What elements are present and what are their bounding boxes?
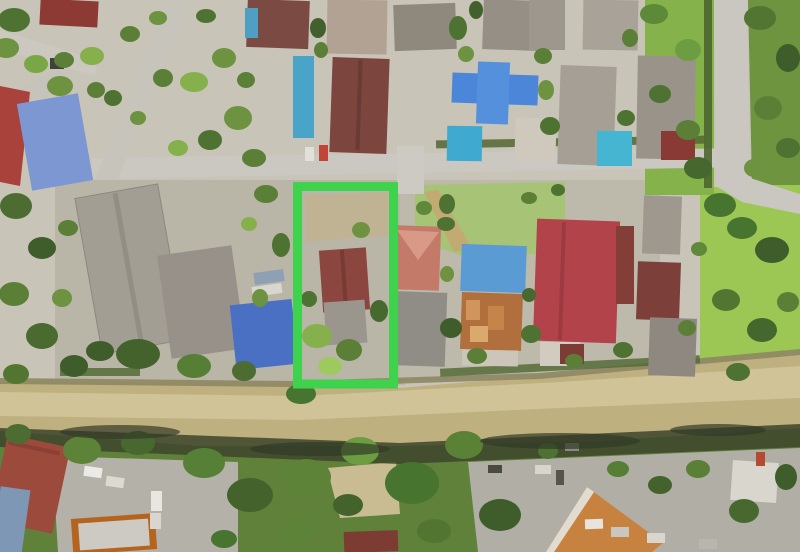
tree xyxy=(538,80,554,100)
tree xyxy=(691,242,707,256)
tree xyxy=(58,220,78,236)
car-white-lane xyxy=(305,147,314,161)
tree xyxy=(777,292,799,312)
tree xyxy=(754,96,782,120)
tree xyxy=(63,436,101,464)
tree xyxy=(254,185,278,203)
tree xyxy=(168,140,188,156)
tree xyxy=(26,323,58,349)
building-roof-blue-royal xyxy=(230,299,298,370)
tree xyxy=(310,18,326,38)
roof-blue-patch xyxy=(245,8,258,38)
tree xyxy=(776,44,800,72)
tree xyxy=(617,110,635,126)
tree xyxy=(177,354,211,378)
tree xyxy=(727,217,757,239)
tree xyxy=(352,222,370,238)
tree xyxy=(212,48,236,68)
car xyxy=(585,519,603,530)
tree xyxy=(416,201,432,215)
building-roof-blue-cross-b xyxy=(476,61,510,124)
tree xyxy=(314,42,328,58)
building-gray-right-1 xyxy=(642,195,682,254)
tree xyxy=(565,354,583,368)
tree xyxy=(227,478,273,512)
tree xyxy=(744,159,764,177)
building-roof-darkred-topleft xyxy=(39,0,98,27)
car xyxy=(151,491,162,511)
tree xyxy=(224,106,252,130)
truck-red-lane xyxy=(319,145,328,161)
building-gray-below-salmon xyxy=(394,291,448,367)
tree xyxy=(318,357,342,375)
tree xyxy=(0,282,29,306)
tree xyxy=(439,194,455,214)
tree xyxy=(534,48,552,64)
tree xyxy=(104,90,122,106)
tree xyxy=(467,348,487,364)
tree xyxy=(242,149,266,167)
tree xyxy=(640,4,668,24)
tree xyxy=(180,72,208,92)
tree xyxy=(252,289,268,307)
tree xyxy=(726,363,750,381)
car-dark xyxy=(488,465,502,473)
tree xyxy=(232,361,256,381)
aerial-imagery-canvas xyxy=(0,0,800,552)
tree xyxy=(613,342,633,358)
tree xyxy=(86,341,114,361)
tree xyxy=(744,6,776,30)
car-dark xyxy=(556,470,564,485)
aerial-map-view xyxy=(0,0,800,552)
tree xyxy=(54,52,74,68)
tree xyxy=(522,288,536,302)
tree xyxy=(675,39,701,61)
tree xyxy=(417,519,451,543)
tree xyxy=(281,519,315,543)
tree xyxy=(755,237,789,263)
tree xyxy=(622,29,638,47)
tree xyxy=(551,184,565,196)
tree xyxy=(440,318,462,338)
tree-shadow xyxy=(60,425,180,439)
shed-red-small xyxy=(756,452,765,466)
car xyxy=(611,527,629,537)
building-roof-crimson-big xyxy=(533,219,620,344)
tree xyxy=(211,530,237,548)
rust-panel-light-3 xyxy=(470,326,488,342)
tree xyxy=(28,237,56,259)
tree xyxy=(729,499,759,523)
building-roof-gray-1 xyxy=(393,3,457,51)
building-roof-tan xyxy=(327,0,388,55)
tree xyxy=(747,318,777,342)
tree xyxy=(686,460,710,478)
car xyxy=(699,539,717,549)
tree xyxy=(52,289,72,307)
tree xyxy=(149,11,167,25)
tree xyxy=(24,55,48,73)
tree xyxy=(120,26,140,42)
building-roof-cyan-tall xyxy=(293,56,314,138)
tree xyxy=(198,130,222,150)
tree xyxy=(437,217,455,231)
road-mid-lane xyxy=(397,146,424,194)
tree xyxy=(385,462,439,504)
tree xyxy=(3,364,29,384)
rust-panel-light-1 xyxy=(466,300,480,320)
tree xyxy=(540,117,560,135)
tree xyxy=(130,111,146,125)
building-maroon-strip xyxy=(616,226,634,304)
building-canopy-white xyxy=(730,459,780,503)
tree xyxy=(47,76,73,96)
tree-shadow xyxy=(670,424,766,436)
tree xyxy=(649,85,671,103)
tree xyxy=(333,494,363,516)
tree xyxy=(776,138,800,158)
tree xyxy=(301,291,317,307)
car xyxy=(535,465,551,474)
rust-panel-light-2 xyxy=(488,306,504,330)
car xyxy=(150,513,161,529)
tree xyxy=(676,120,700,140)
tree xyxy=(237,72,255,88)
tree xyxy=(648,476,672,494)
tree xyxy=(521,325,541,343)
tree xyxy=(678,320,696,336)
tree xyxy=(712,289,740,311)
orange-roof-stripes xyxy=(78,519,150,551)
building-roof-teal xyxy=(597,131,632,166)
lot-yard xyxy=(305,192,388,242)
tree xyxy=(60,355,88,377)
tree xyxy=(440,266,454,282)
tree xyxy=(80,47,104,65)
tree xyxy=(0,193,32,219)
tree xyxy=(183,448,225,478)
tree xyxy=(607,461,629,477)
tree xyxy=(469,1,483,19)
tree xyxy=(445,431,483,459)
building-roof-teal-small xyxy=(447,126,483,162)
tree xyxy=(704,193,736,217)
tree xyxy=(272,233,290,257)
tree xyxy=(479,499,521,531)
tree xyxy=(196,9,216,23)
tree-shadow xyxy=(480,433,640,449)
building-roof-blue-mid xyxy=(460,244,527,293)
tree xyxy=(281,459,331,495)
building-darkred-bottom xyxy=(344,530,399,552)
tree xyxy=(521,192,537,204)
tree xyxy=(449,16,467,40)
tree xyxy=(87,82,105,98)
tree xyxy=(775,464,797,490)
building-gray-mid xyxy=(157,245,246,358)
tree xyxy=(241,217,257,231)
building-maroon-right xyxy=(636,261,681,320)
tree xyxy=(116,339,160,369)
tree-shadow xyxy=(250,442,390,456)
tree xyxy=(5,424,31,444)
car xyxy=(647,533,665,543)
building-roof-gray-3 xyxy=(529,0,565,50)
tree xyxy=(336,339,362,361)
tree xyxy=(458,46,474,62)
tree xyxy=(302,324,332,348)
tree xyxy=(684,157,712,179)
tree xyxy=(153,69,173,87)
tree xyxy=(370,300,388,322)
